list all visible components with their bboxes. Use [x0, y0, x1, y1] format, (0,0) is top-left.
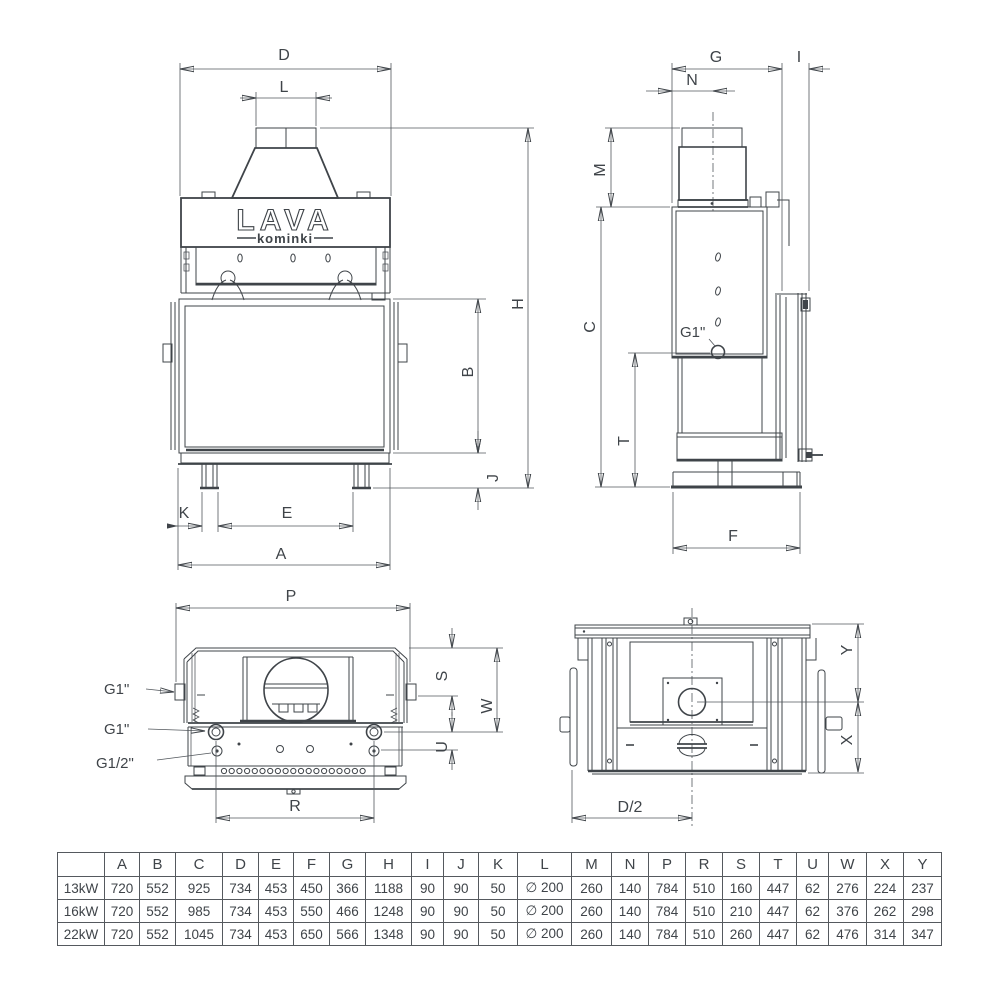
- spec-cell: 262: [867, 900, 904, 923]
- col-header: U: [797, 853, 829, 877]
- spec-cell: 276: [829, 877, 867, 900]
- spec-cell: 298: [904, 900, 942, 923]
- spec-cell: 466: [330, 900, 366, 923]
- spec-cell: 734: [223, 877, 259, 900]
- spec-cell: 985: [176, 900, 223, 923]
- dim-label-D: D: [278, 47, 290, 64]
- spec-cell: 50: [479, 923, 518, 946]
- spec-cell: 1188: [366, 877, 412, 900]
- logo-sub-text: kominki: [257, 231, 313, 246]
- row-label: 22kW: [58, 923, 105, 946]
- spec-cell: 453: [259, 923, 294, 946]
- side-view-outline: [671, 112, 823, 487]
- spec-cell: 62: [797, 923, 829, 946]
- dim-label-J: J: [485, 474, 502, 482]
- dim-label-I: I: [797, 49, 801, 66]
- dim-label-U: U: [434, 741, 451, 753]
- spec-cell: 237: [904, 877, 942, 900]
- dim-label-H: H: [510, 298, 527, 310]
- spec-cell: ∅ 200: [518, 923, 572, 946]
- spec-table-row: 22kW 720 552 1045 734 453 650 566 1348 9…: [58, 923, 942, 946]
- front-view-outline: [163, 128, 407, 488]
- col-header: A: [105, 853, 140, 877]
- spec-cell: 552: [140, 900, 176, 923]
- spec-cell: 62: [797, 900, 829, 923]
- spec-table-row: 13kW 720 552 925 734 453 450 366 1188 90…: [58, 877, 942, 900]
- row-label: 16kW: [58, 900, 105, 923]
- spec-cell: 510: [686, 923, 723, 946]
- spec-cell: 50: [479, 877, 518, 900]
- spec-cell: 1045: [176, 923, 223, 946]
- spec-cell: 453: [259, 900, 294, 923]
- dim-label-P: P: [286, 588, 297, 605]
- spec-cell: 160: [723, 877, 760, 900]
- spec-cell: 510: [686, 900, 723, 923]
- spec-cell: 50: [479, 900, 518, 923]
- dim-label-W: W: [479, 698, 496, 714]
- spec-cell: 210: [723, 900, 760, 923]
- port-label-g1-lower: G1": [104, 721, 129, 738]
- dim-label-L: L: [280, 79, 289, 96]
- dim-label-X: X: [839, 734, 856, 745]
- side-view-dimensions: G I N M C T F G1": [582, 49, 830, 554]
- spec-table: A B C D E F G H I J K L M N P R S T U W …: [57, 852, 942, 946]
- spec-cell: 734: [223, 923, 259, 946]
- dim-label-Y: Y: [839, 644, 856, 655]
- dim-label-E: E: [282, 505, 293, 522]
- spec-cell: 720: [105, 923, 140, 946]
- col-header: I: [412, 853, 444, 877]
- col-header: N: [612, 853, 649, 877]
- spec-cell: 90: [412, 877, 444, 900]
- spec-cell: 90: [444, 923, 479, 946]
- col-header: K: [479, 853, 518, 877]
- col-header: [58, 853, 105, 877]
- spec-cell: 260: [572, 877, 612, 900]
- spec-cell: 784: [649, 923, 686, 946]
- dim-label-R: R: [289, 798, 301, 815]
- spec-cell: 450: [294, 877, 330, 900]
- spec-cell: 260: [723, 923, 760, 946]
- dim-label-B: B: [460, 367, 477, 378]
- spec-cell: 376: [829, 900, 867, 923]
- dim-label-S: S: [434, 671, 451, 682]
- dim-label-G: G: [710, 49, 722, 66]
- spec-cell: 784: [649, 877, 686, 900]
- spec-cell: 314: [867, 923, 904, 946]
- spec-cell: 925: [176, 877, 223, 900]
- col-header: E: [259, 853, 294, 877]
- col-header: R: [686, 853, 723, 877]
- spec-cell: 140: [612, 923, 649, 946]
- front-view-dimensions: D L H B J K E A: [167, 47, 534, 570]
- spec-cell: ∅ 200: [518, 877, 572, 900]
- spec-cell: 552: [140, 923, 176, 946]
- spec-cell: 347: [904, 923, 942, 946]
- spec-cell: 510: [686, 877, 723, 900]
- bottom-view-dimensions: Y X D/2: [572, 624, 864, 823]
- col-header: L: [518, 853, 572, 877]
- col-header: S: [723, 853, 760, 877]
- spec-cell: 140: [612, 900, 649, 923]
- spec-cell: 447: [760, 877, 797, 900]
- spec-table-row: 16kW 720 552 985 734 453 550 466 1248 90…: [58, 900, 942, 923]
- col-header: X: [867, 853, 904, 877]
- col-header: J: [444, 853, 479, 877]
- spec-cell: 447: [760, 923, 797, 946]
- dim-label-D2: D/2: [618, 799, 643, 816]
- port-label-g1-side: G1": [680, 324, 705, 341]
- spec-cell: 550: [294, 900, 330, 923]
- spec-cell: 260: [572, 923, 612, 946]
- spec-cell: 260: [572, 900, 612, 923]
- row-label: 13kW: [58, 877, 105, 900]
- col-header: Y: [904, 853, 942, 877]
- port-label-g12: G1/2": [96, 755, 134, 772]
- spec-cell: 90: [444, 900, 479, 923]
- col-header: P: [649, 853, 686, 877]
- spec-cell: 447: [760, 900, 797, 923]
- spec-cell: 1348: [366, 923, 412, 946]
- top-view-outline: [175, 648, 416, 794]
- col-header: W: [829, 853, 867, 877]
- spec-cell: 552: [140, 877, 176, 900]
- spec-cell: 734: [223, 900, 259, 923]
- spec-cell: 62: [797, 877, 829, 900]
- technical-drawing-page: LAVA kominki D L H B J K E A: [0, 0, 1000, 1000]
- spec-table-header-row: A B C D E F G H I J K L M N P R S T U W …: [58, 853, 942, 877]
- spec-cell: 720: [105, 877, 140, 900]
- dim-label-N: N: [686, 72, 698, 89]
- drawing-canvas: LAVA kominki D L H B J K E A: [0, 0, 1000, 1000]
- spec-cell: 90: [412, 923, 444, 946]
- dim-label-T: T: [616, 436, 633, 446]
- spec-cell: 90: [412, 900, 444, 923]
- spec-cell: 476: [829, 923, 867, 946]
- col-header: C: [176, 853, 223, 877]
- spec-cell: ∅ 200: [518, 900, 572, 923]
- spec-cell: 720: [105, 900, 140, 923]
- spec-cell: 566: [330, 923, 366, 946]
- top-view-dimensions: P S W U R G1" G1" G1/2": [96, 588, 503, 823]
- dim-label-C: C: [582, 321, 599, 333]
- port-label-g1-upper: G1": [104, 681, 129, 698]
- spec-cell: 784: [649, 900, 686, 923]
- dim-label-A: A: [276, 546, 287, 563]
- spec-cell: 90: [444, 877, 479, 900]
- col-header: D: [223, 853, 259, 877]
- col-header: H: [366, 853, 412, 877]
- col-header: G: [330, 853, 366, 877]
- spec-cell: 140: [612, 877, 649, 900]
- dim-label-M: M: [592, 163, 609, 176]
- dim-label-F: F: [728, 528, 738, 545]
- spec-cell: 1248: [366, 900, 412, 923]
- bottom-view-outline: [560, 608, 842, 826]
- spec-cell: 224: [867, 877, 904, 900]
- front-view-logo: LAVA kominki: [236, 204, 333, 246]
- dim-label-K: K: [179, 505, 190, 522]
- col-header: F: [294, 853, 330, 877]
- col-header: M: [572, 853, 612, 877]
- spec-cell: 366: [330, 877, 366, 900]
- col-header: T: [760, 853, 797, 877]
- spec-cell: 650: [294, 923, 330, 946]
- spec-cell: 453: [259, 877, 294, 900]
- col-header: B: [140, 853, 176, 877]
